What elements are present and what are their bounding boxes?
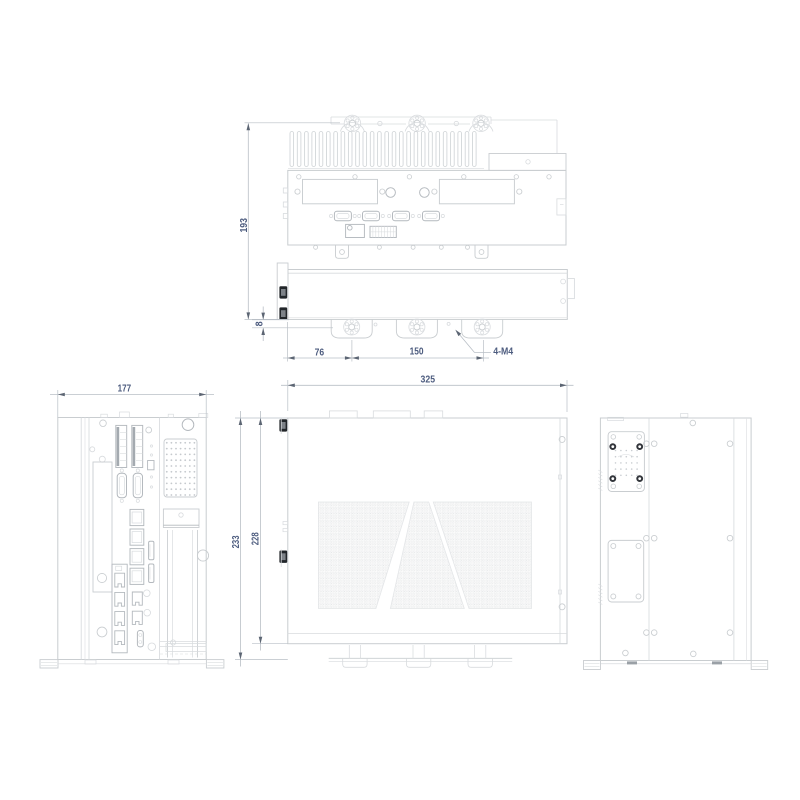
svg-text:193: 193	[238, 218, 250, 233]
svg-text:325: 325	[421, 373, 436, 385]
svg-text:233: 233	[230, 535, 242, 548]
svg-text:76: 76	[315, 347, 325, 359]
svg-text:4-M4: 4-M4	[493, 346, 513, 358]
svg-text:8: 8	[253, 321, 265, 326]
svg-text:150: 150	[410, 345, 424, 357]
svg-text:228: 228	[250, 532, 262, 545]
svg-text:177: 177	[118, 383, 132, 395]
